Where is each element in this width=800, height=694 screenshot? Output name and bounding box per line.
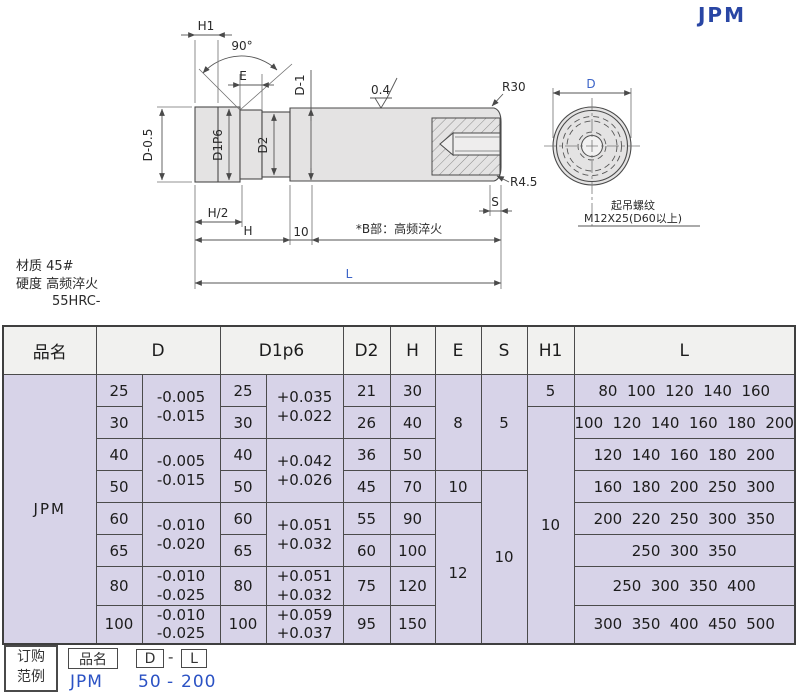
table-row: 30 30 26 40 10 100 120 140 160 180 200	[3, 407, 795, 439]
cell-d2: 21	[343, 375, 390, 407]
cell-d2: 75	[343, 567, 390, 606]
cell-d-tol: -0.005 -0.015	[142, 439, 220, 503]
col-header-h: H	[390, 326, 435, 375]
material-line2: 硬度 高频淬火	[16, 276, 98, 292]
cell-e: 8	[435, 375, 481, 471]
l-label: L	[346, 267, 353, 281]
col-header-d1p6: D1p6	[220, 326, 343, 375]
cell-h1: 10	[527, 407, 574, 645]
dminus1-label: D-1	[293, 74, 307, 95]
cell-h: 100	[390, 535, 435, 567]
col-header-d2: D2	[343, 326, 390, 375]
cell-d1: 65	[220, 535, 266, 567]
cell-e: 12	[435, 503, 481, 645]
header-row: 品名 D D1p6 D2 H E S H1 L	[3, 326, 795, 375]
h-half-label: H/2	[208, 206, 229, 220]
cell-d1: 100	[220, 605, 266, 644]
dash-separator: -	[168, 648, 173, 666]
table-row: 100 -0.010 -0.025 100 +0.059 +0.037 95 1…	[3, 605, 795, 644]
example-product-name: JPM	[70, 672, 103, 692]
cell-d1: 60	[220, 503, 266, 535]
material-line3: 55HRC-	[52, 294, 101, 309]
cell-l: 250 300 350	[574, 535, 795, 567]
cell-d2: 45	[343, 471, 390, 503]
r45-label: R4.5	[510, 175, 537, 189]
roughness-symbol: 0.4	[370, 78, 397, 108]
order-example: 订购 范例 品名 D - L JPM 50 - 200	[0, 642, 800, 694]
cell-d: 40	[96, 439, 142, 471]
example-l-value: 200	[181, 672, 216, 692]
cell-d-tol: -0.010 -0.025	[142, 567, 220, 606]
cell-h: 150	[390, 605, 435, 644]
cell-h: 40	[390, 407, 435, 439]
material-note: 材质 45# 硬度 高频淬火 55HRC-	[16, 259, 101, 309]
cell-d1-tol: +0.042 +0.026	[266, 439, 343, 503]
cell-s: 5	[481, 375, 527, 471]
cell-d1: 25	[220, 375, 266, 407]
lifting-thread-socket	[432, 118, 500, 175]
cell-d-tol: -0.010 -0.025	[142, 605, 220, 644]
table-row: 50 50 45 70 10 10 160 180 200 250 300	[3, 471, 795, 503]
cell-l: 250 300 350 400	[574, 567, 795, 606]
lift-thread-note-line2: M12X25(D60以上)	[584, 212, 682, 225]
cell-l: 80 100 120 140 160	[574, 375, 795, 407]
cell-d-tol: -0.005 -0.015	[142, 375, 220, 439]
s-label: S	[491, 195, 499, 209]
cell-d2: 95	[343, 605, 390, 644]
d2-label: D2	[256, 137, 270, 154]
col-header-l: L	[574, 326, 795, 375]
cell-d1: 50	[220, 471, 266, 503]
cell-d2: 60	[343, 535, 390, 567]
cell-h1: 5	[527, 375, 574, 407]
cell-s: 10	[481, 471, 527, 645]
h-label: H	[243, 224, 252, 238]
cell-d2: 26	[343, 407, 390, 439]
cell-d2: 55	[343, 503, 390, 535]
cell-d1: 80	[220, 567, 266, 606]
cell-d2: 36	[343, 439, 390, 471]
cell-d: 60	[96, 503, 142, 535]
cell-l: 200 220 250 300 350	[574, 503, 795, 535]
cell-d1-tol: +0.059 +0.037	[266, 605, 343, 644]
l-code-box: L	[181, 649, 207, 668]
cell-d1: 30	[220, 407, 266, 439]
cell-d: 80	[96, 567, 142, 606]
col-header-s: S	[481, 326, 527, 375]
cell-d: 30	[96, 407, 142, 439]
roughness-label: 0.4	[371, 83, 390, 97]
table-row: 80 -0.010 -0.025 80 +0.051 +0.032 75 120…	[3, 567, 795, 606]
d1p6-label: D1P6	[211, 129, 225, 161]
spec-table: 品名 D D1p6 D2 H E S H1 L JPM 25 -0.005 -0…	[2, 325, 796, 645]
e-label: E	[239, 69, 247, 83]
angle-label: 90°	[231, 39, 252, 53]
order-example-label-line2: 范例	[6, 667, 56, 687]
cell-d1-tol: +0.051 +0.032	[266, 503, 343, 567]
cell-h: 50	[390, 439, 435, 471]
technical-drawing: JPM 90°	[0, 0, 800, 322]
d-label: D	[586, 77, 595, 91]
table-row: 40 -0.005 -0.015 40 +0.042 +0.026 36 50 …	[3, 439, 795, 471]
cell-d-tol: -0.010 -0.020	[142, 503, 220, 567]
cell-d: 25	[96, 375, 142, 407]
cell-h: 120	[390, 567, 435, 606]
cell-d: 50	[96, 471, 142, 503]
table-row: 65 65 60 100 250 300 350	[3, 535, 795, 567]
cell-d1: 40	[220, 439, 266, 471]
example-d-value: 50	[138, 672, 162, 692]
cell-h: 70	[390, 471, 435, 503]
cell-d1-tol: +0.035 +0.022	[266, 375, 343, 439]
order-example-box: 订购 范例	[4, 645, 58, 692]
cell-e: 10	[435, 471, 481, 503]
d05-label: D-0.5	[141, 129, 155, 162]
table-row: JPM 25 -0.005 -0.015 25 +0.035 +0.022 21…	[3, 375, 795, 407]
end-view: D 起吊螺纹 M12X25(D60以上)	[544, 77, 700, 226]
cell-d1-tol: +0.051 +0.032	[266, 567, 343, 606]
cell-l: 120 140 160 180 200	[574, 439, 795, 471]
page-title: JPM	[696, 3, 746, 27]
h1-label: H1	[198, 19, 215, 33]
cell-l: 160 180 200 250 300	[574, 471, 795, 503]
product-name-cell: JPM	[3, 375, 96, 645]
cell-h: 30	[390, 375, 435, 407]
cell-l: 300 350 400 450 500	[574, 605, 795, 644]
col-header-h1: H1	[527, 326, 574, 375]
pinming-box: 品名	[68, 648, 118, 669]
example-dash: -	[167, 672, 174, 692]
col-header-pinming: 品名	[3, 326, 96, 375]
side-view: 90° H1 E D-0.5 D1P6	[141, 19, 537, 289]
r30-label: R30	[502, 80, 526, 94]
cell-l: 100 120 140 160 180 200	[574, 407, 795, 439]
d-code-box: D	[136, 649, 164, 668]
col-header-d: D	[96, 326, 220, 375]
cell-h: 90	[390, 503, 435, 535]
table-row: 60 -0.010 -0.020 60 +0.051 +0.032 55 90 …	[3, 503, 795, 535]
b-zone-note: *B部：高频淬火	[356, 221, 442, 236]
col-header-e: E	[435, 326, 481, 375]
material-line1: 材质 45#	[16, 259, 74, 274]
cell-d: 65	[96, 535, 142, 567]
ten-label: 10	[293, 225, 308, 239]
lift-thread-note-line1: 起吊螺纹	[611, 198, 655, 212]
order-example-label-line1: 订购	[6, 647, 56, 667]
cell-d: 100	[96, 605, 142, 644]
